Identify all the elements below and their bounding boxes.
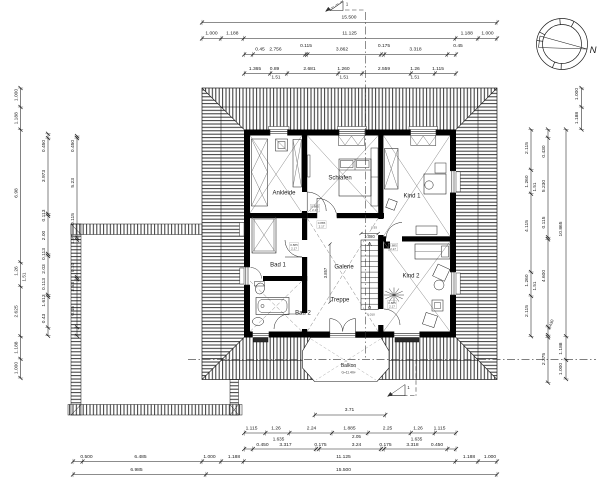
svg-text:2.17: 2.17 [390, 247, 396, 251]
svg-text:2.756: 2.756 [269, 47, 282, 53]
svg-text:2.24: 2.24 [307, 426, 317, 432]
svg-text:6.98: 6.98 [14, 188, 20, 198]
svg-text:3.973: 3.973 [41, 170, 47, 183]
svg-text:1.000: 1.000 [14, 362, 20, 375]
svg-text:6.485: 6.485 [134, 454, 147, 460]
svg-text:Galerie: Galerie [334, 265, 354, 271]
svg-text:1.188: 1.188 [228, 454, 241, 460]
svg-text:1.188: 1.188 [574, 112, 580, 125]
svg-text:Treppe: Treppe [331, 298, 350, 304]
svg-text:N: N [590, 45, 597, 56]
svg-text:1.115: 1.115 [434, 426, 446, 432]
svg-text:2.115: 2.115 [524, 305, 530, 317]
svg-text:11.125: 11.125 [342, 31, 357, 37]
svg-text:1.000: 1.000 [205, 31, 218, 37]
svg-text:2.375: 2.375 [541, 353, 547, 366]
svg-text:2.681: 2.681 [303, 66, 316, 72]
svg-text:Balkon: Balkon [341, 363, 357, 369]
svg-text:0.45: 0.45 [70, 306, 76, 316]
svg-text:2.559: 2.559 [378, 66, 391, 72]
svg-text:0.450: 0.450 [41, 140, 47, 153]
svg-text:6.985: 6.985 [130, 467, 143, 473]
svg-text:1.635: 1.635 [273, 437, 285, 442]
svg-text:G≈11.4m²: G≈11.4m² [342, 371, 356, 375]
svg-text:2.53: 2.53 [70, 282, 76, 292]
svg-text:1.51: 1.51 [22, 272, 27, 281]
svg-text:1.51: 1.51 [340, 75, 349, 80]
svg-text:Ankleide: Ankleide [272, 191, 296, 197]
svg-text:Kind 2: Kind 2 [402, 274, 420, 280]
svg-text:1.188: 1.188 [463, 454, 476, 460]
svg-text:0.115: 0.115 [541, 216, 547, 228]
svg-text:1.115: 1.115 [432, 66, 444, 72]
svg-text:0.115: 0.115 [300, 43, 312, 49]
svg-text:1.260: 1.260 [524, 274, 530, 287]
svg-text:3.24: 3.24 [352, 442, 362, 448]
svg-text:4.600: 4.600 [541, 270, 547, 283]
svg-text:1.010: 1.010 [367, 313, 375, 317]
svg-text:0.43: 0.43 [41, 313, 47, 323]
svg-text:1.188: 1.188 [14, 112, 20, 125]
svg-text:0.113: 0.113 [41, 278, 47, 290]
svg-text:10.865: 10.865 [558, 221, 564, 236]
svg-text:1.115: 1.115 [246, 426, 258, 432]
svg-text:1.26: 1.26 [271, 426, 281, 432]
svg-text:2.115: 2.115 [524, 142, 530, 154]
svg-text:0.450: 0.450 [431, 442, 444, 448]
svg-text:0.450: 0.450 [70, 140, 76, 153]
svg-text:1.51: 1.51 [272, 75, 281, 80]
svg-text:1.885: 1.885 [343, 426, 356, 432]
svg-text:2.625: 2.625 [14, 305, 20, 318]
svg-text:4.115: 4.115 [524, 220, 530, 232]
svg-text:2.03: 2.03 [41, 264, 47, 274]
svg-text:15.500: 15.500 [342, 15, 357, 21]
svg-text:1.51: 1.51 [411, 75, 420, 80]
svg-text:2.17: 2.17 [319, 224, 325, 228]
svg-text:0.113: 0.113 [41, 248, 47, 260]
svg-text:1.000: 1.000 [14, 89, 20, 102]
svg-text:1.613: 1.613 [41, 294, 47, 307]
svg-text:1.000: 1.000 [574, 88, 580, 101]
svg-text:3.318: 3.318 [406, 442, 419, 448]
svg-text:0.113: 0.113 [41, 209, 47, 221]
svg-text:1.51: 1.51 [532, 182, 537, 191]
svg-text:2.25: 2.25 [383, 426, 393, 432]
svg-text:1.188: 1.188 [558, 342, 564, 355]
svg-text:1.365: 1.365 [249, 66, 262, 72]
svg-text:2.17: 2.17 [291, 246, 297, 250]
svg-text:3.317: 3.317 [279, 442, 292, 448]
svg-text:5.230: 5.230 [541, 180, 547, 193]
svg-text:1.26: 1.26 [413, 426, 423, 432]
svg-text:11.125: 11.125 [336, 454, 351, 460]
svg-text:1.000: 1.000 [558, 363, 564, 376]
svg-text:Schlafen: Schlafen [328, 176, 351, 182]
svg-text:1.188: 1.188 [14, 341, 20, 354]
svg-text:3.862: 3.862 [336, 47, 349, 53]
svg-text:Bad 1: Bad 1 [270, 263, 286, 269]
svg-text:0.500: 0.500 [80, 454, 93, 460]
svg-text:1.000: 1.000 [484, 454, 497, 460]
svg-text:3.71: 3.71 [345, 407, 355, 413]
svg-text:1.080: 1.080 [364, 234, 375, 239]
svg-text:2.05: 2.05 [352, 434, 361, 439]
svg-text:1.260: 1.260 [524, 175, 530, 188]
svg-text:0.89: 0.89 [270, 66, 280, 72]
svg-text:1.000: 1.000 [481, 31, 494, 37]
svg-text:1.000: 1.000 [203, 454, 216, 460]
svg-text:0.45: 0.45 [255, 47, 265, 53]
svg-text:15.500: 15.500 [336, 467, 351, 473]
svg-text:1.26: 1.26 [410, 66, 420, 72]
svg-text:3.318: 3.318 [409, 47, 422, 53]
svg-text:1.188: 1.188 [461, 31, 474, 37]
svg-text:Kind 1: Kind 1 [403, 194, 421, 200]
svg-text:1.26: 1.26 [14, 266, 20, 276]
svg-text:5.23: 5.23 [70, 178, 76, 188]
svg-text:0.93: 0.93 [371, 226, 377, 230]
svg-text:Bad 2: Bad 2 [295, 311, 311, 317]
svg-text:0.450: 0.450 [256, 442, 269, 448]
svg-text:0.10: 0.10 [70, 262, 76, 272]
svg-text:2.17: 2.17 [312, 208, 318, 212]
svg-text:2.17: 2.17 [389, 304, 395, 308]
svg-text:0.430: 0.430 [541, 145, 547, 158]
svg-text:0.45: 0.45 [453, 43, 463, 49]
svg-text:2.00: 2.00 [41, 230, 47, 240]
svg-text:0.175: 0.175 [378, 43, 391, 49]
svg-text:3.857: 3.857 [323, 267, 328, 278]
svg-text:0.175: 0.175 [379, 442, 392, 448]
svg-text:1.51: 1.51 [532, 281, 537, 290]
svg-text:1.635: 1.635 [411, 437, 423, 442]
svg-text:1.97: 1.97 [70, 234, 76, 244]
svg-text:1.260: 1.260 [337, 66, 350, 72]
svg-text:0.175: 0.175 [314, 442, 327, 448]
svg-text:0.115: 0.115 [70, 213, 76, 225]
svg-text:1.188: 1.188 [226, 31, 239, 37]
